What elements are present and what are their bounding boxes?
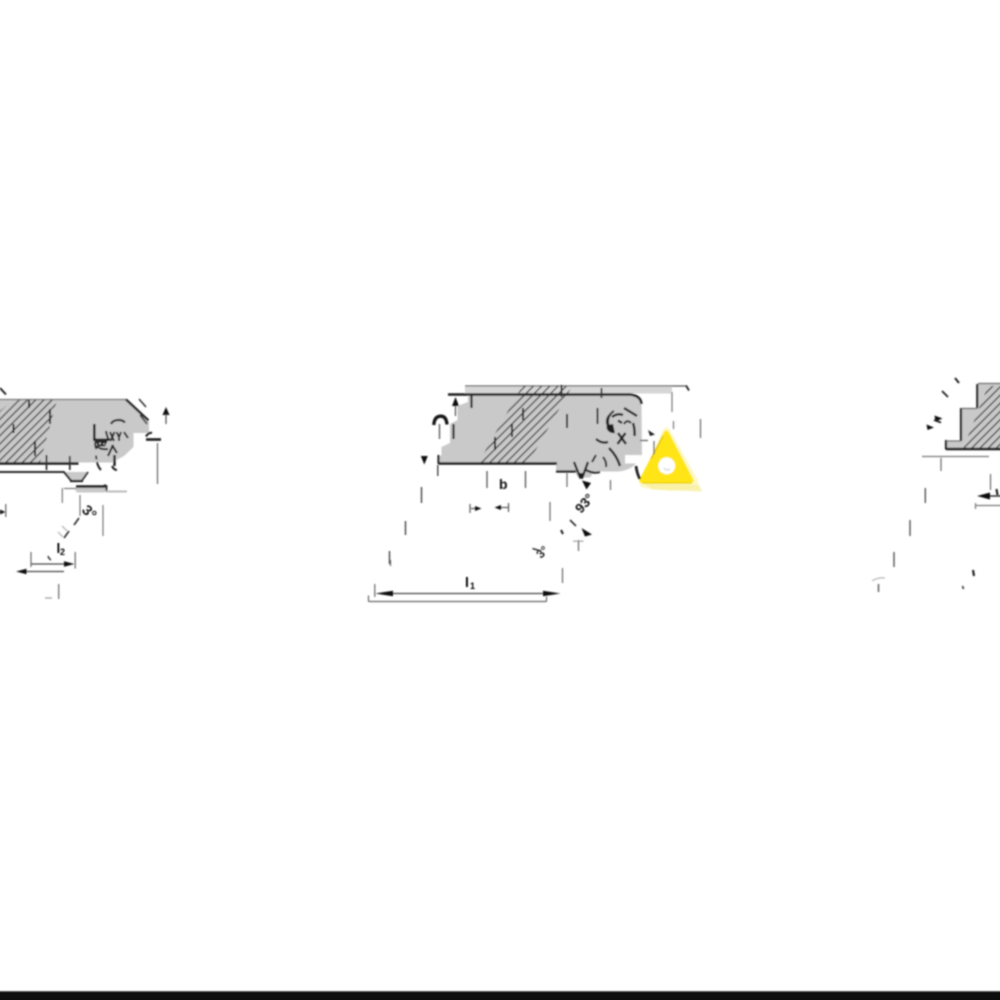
svg-text:3°: 3°	[533, 543, 551, 561]
svg-text:3°: 3°	[78, 502, 99, 523]
svg-text:l: l	[465, 574, 469, 590]
svg-text:b: b	[499, 476, 508, 492]
svg-text:93°: 93°	[572, 491, 597, 516]
svg-text:2: 2	[60, 547, 65, 557]
svg-text:1: 1	[470, 581, 475, 591]
